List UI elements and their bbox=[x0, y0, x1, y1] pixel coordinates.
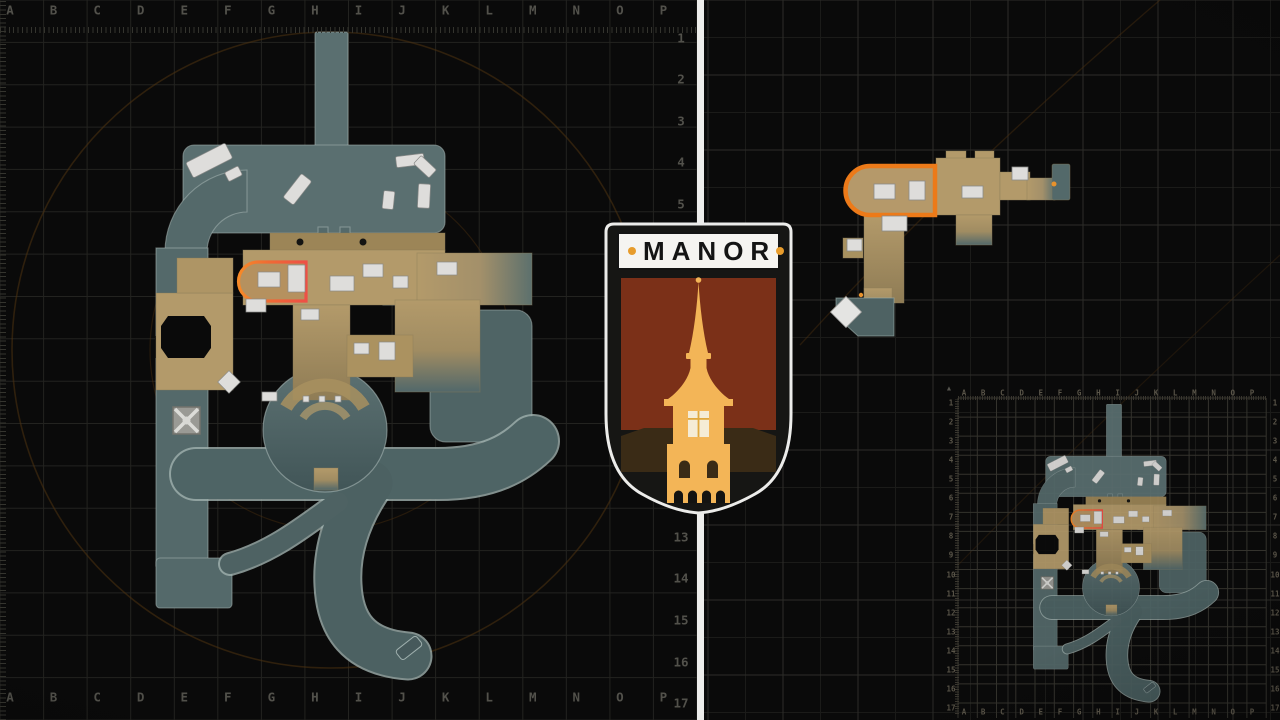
map-title: MANOR bbox=[636, 236, 776, 267]
map-badge: MANOR bbox=[604, 222, 793, 515]
ruler-minimap-left bbox=[955, 399, 959, 714]
zoomed-map-view[interactable] bbox=[830, 151, 1070, 336]
minimap-view[interactable] bbox=[958, 398, 1266, 718]
main-map-view[interactable] bbox=[0, 0, 697, 720]
ruler-minimap-top bbox=[958, 396, 1266, 400]
tactical-map-screen: ▲ AAAABBBBCCCCDDDDEEEEFFFFGGGGHHHHIIIIJJ… bbox=[0, 0, 1280, 720]
ruler-top bbox=[0, 27, 697, 33]
badge-banner: MANOR bbox=[617, 232, 780, 270]
ruler-left bbox=[0, 0, 6, 720]
banner-dot-left-icon bbox=[628, 247, 636, 255]
